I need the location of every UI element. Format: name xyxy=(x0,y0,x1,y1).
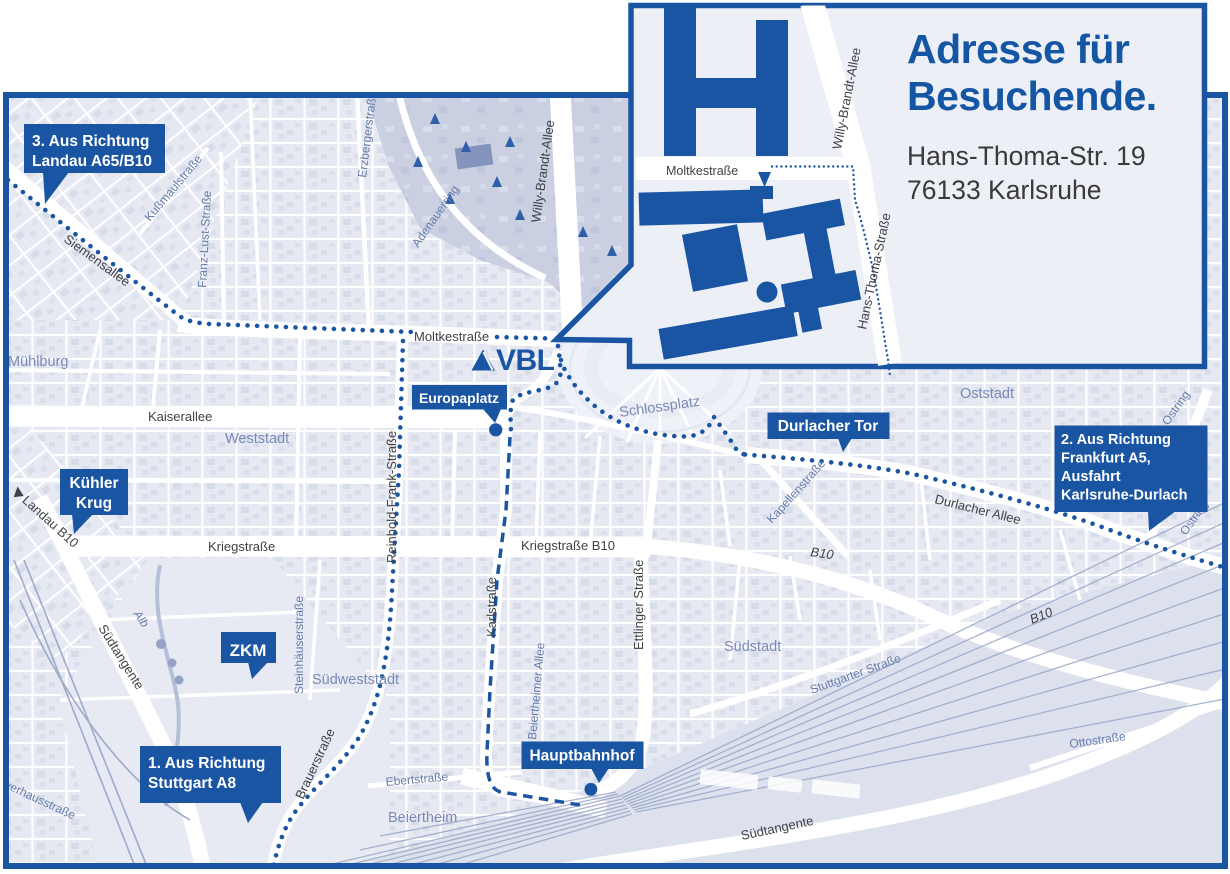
svg-text:Europaplatz: Europaplatz xyxy=(419,390,499,406)
svg-text:Moltkestraße: Moltkestraße xyxy=(414,329,489,344)
svg-text:Karlsruhe-Durlach: Karlsruhe-Durlach xyxy=(1061,488,1188,504)
svg-text:Frankfurt A5,: Frankfurt A5, xyxy=(1061,451,1151,467)
svg-text:Durlacher Tor: Durlacher Tor xyxy=(778,418,879,435)
svg-text:Kaiserallee: Kaiserallee xyxy=(148,409,212,424)
svg-text:Moltkestraße: Moltkestraße xyxy=(666,164,738,178)
svg-text:Ettlinger Straße: Ettlinger Straße xyxy=(631,560,646,650)
svg-text:Südstadt: Südstadt xyxy=(724,639,781,655)
svg-text:ZKM: ZKM xyxy=(230,641,267,660)
svg-text:Reinhold-Frank-Straße: Reinhold-Frank-Straße xyxy=(384,431,399,563)
svg-text:1. Aus Richtung: 1. Aus Richtung xyxy=(148,755,265,772)
svg-text:Karlstraße: Karlstraße xyxy=(484,577,499,637)
svg-text:Hauptbahnhof: Hauptbahnhof xyxy=(529,748,635,765)
svg-text:Kriegstraße: Kriegstraße xyxy=(208,539,275,554)
svg-text:Landau A65/B10: Landau A65/B10 xyxy=(32,153,152,170)
svg-text:76133 Karlsruhe: 76133 Karlsruhe xyxy=(907,175,1101,205)
svg-text:Weststadt: Weststadt xyxy=(225,431,289,447)
svg-text:Mühlburg: Mühlburg xyxy=(8,354,68,370)
svg-text:Hans-Thoma-Str. 19: Hans-Thoma-Str. 19 xyxy=(907,141,1146,171)
svg-text:Ausfahrt: Ausfahrt xyxy=(1061,469,1121,485)
svg-text:Beiertheim: Beiertheim xyxy=(388,810,457,826)
svg-text:Oststadt: Oststadt xyxy=(960,386,1014,402)
svg-text:Kriegstraße B10: Kriegstraße B10 xyxy=(521,538,615,553)
svg-text:Besuchende.: Besuchende. xyxy=(907,73,1157,119)
svg-text:VBL: VBL xyxy=(496,344,555,377)
svg-text:2. Aus Richtung: 2. Aus Richtung xyxy=(1061,432,1171,448)
svg-text:Adresse für: Adresse für xyxy=(907,26,1130,72)
svg-text:Kühler: Kühler xyxy=(69,475,118,492)
svg-text:Steinhäuserstraße: Steinhäuserstraße xyxy=(292,596,306,694)
svg-text:Krug: Krug xyxy=(76,495,112,512)
svg-text:Stuttgart A8: Stuttgart A8 xyxy=(148,775,236,792)
svg-text:3. Aus Richtung: 3. Aus Richtung xyxy=(32,133,149,150)
svg-text:Südweststadt: Südweststadt xyxy=(312,672,399,688)
